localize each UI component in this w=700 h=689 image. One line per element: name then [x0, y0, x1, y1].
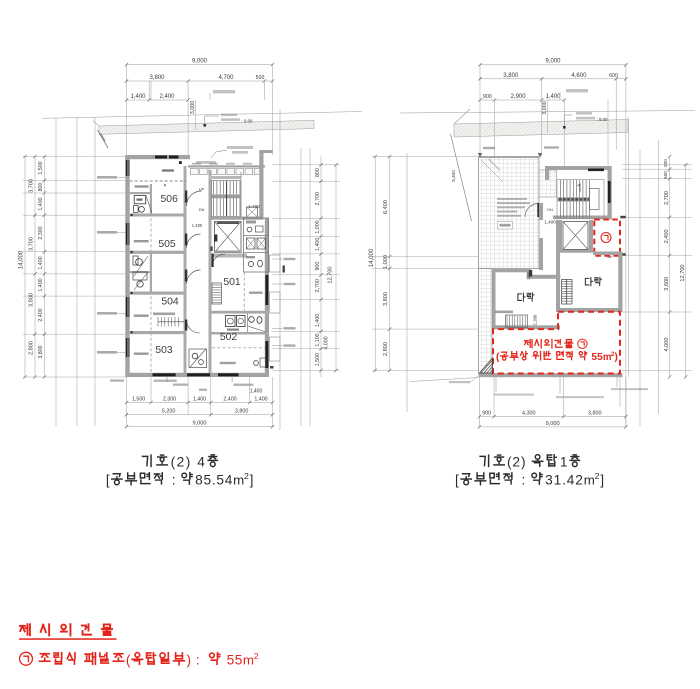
svg-text:3,800: 3,800: [383, 292, 389, 306]
svg-text:1,400: 1,400: [250, 389, 263, 395]
svg-text:31.42: 31.42: [545, 472, 584, 487]
svg-text:4,600: 4,600: [571, 73, 587, 79]
svg-text:85.54: 85.54: [195, 472, 233, 487]
svg-text:502: 502: [220, 332, 238, 343]
svg-text:[: [: [106, 472, 111, 487]
svg-text:800: 800: [663, 159, 668, 167]
svg-text:9,000: 9,000: [192, 59, 208, 65]
svg-text:1,400: 1,400: [192, 223, 203, 228]
svg-text:900: 900: [315, 262, 321, 271]
svg-text:3,700: 3,700: [29, 237, 35, 251]
svg-text:(: (: [496, 352, 500, 363]
svg-text::: :: [517, 472, 531, 487]
svg-text:(: (: [126, 652, 131, 667]
svg-text:1,400: 1,400: [193, 397, 206, 403]
svg-text:2,400: 2,400: [159, 94, 175, 100]
svg-text:2,800: 2,800: [383, 342, 389, 356]
svg-text:2,900: 2,900: [511, 94, 527, 100]
svg-text:900: 900: [482, 411, 491, 417]
svg-text:800: 800: [38, 183, 44, 192]
svg-text:]: ]: [600, 472, 605, 487]
svg-text:3,000: 3,000: [190, 101, 196, 115]
svg-text:3,800: 3,800: [29, 293, 35, 307]
svg-text:1,000: 1,000: [315, 220, 321, 233]
svg-text:: 9.00: : 9.00: [597, 117, 609, 122]
svg-text:) :: ) :: [186, 652, 208, 667]
svg-text:14,000: 14,000: [369, 248, 375, 267]
svg-text:3,800: 3,800: [235, 409, 249, 415]
svg-text:3,000: 3,000: [542, 101, 548, 115]
svg-text:1,100: 1,100: [315, 333, 321, 346]
svg-text::: :: [167, 472, 181, 487]
svg-text:3,800: 3,800: [38, 345, 44, 358]
svg-text:14,000: 14,000: [19, 250, 25, 269]
svg-text:DN: DN: [199, 207, 205, 212]
svg-text:2: 2: [254, 651, 259, 661]
svg-text:6,400: 6,400: [383, 200, 389, 214]
svg-text:4,000: 4,000: [664, 338, 670, 352]
svg-text:12,700: 12,700: [680, 264, 686, 281]
svg-text:1,200: 1,200: [533, 314, 538, 325]
svg-text:1,400: 1,400: [248, 204, 260, 209]
svg-text:m: m: [243, 652, 254, 667]
svg-text:9,000: 9,000: [545, 59, 561, 65]
svg-text:m: m: [233, 472, 244, 487]
svg-text:4,700: 4,700: [218, 75, 234, 81]
svg-text:2,700: 2,700: [664, 191, 670, 205]
svg-text:3,600: 3,600: [664, 277, 670, 291]
svg-text:1,400: 1,400: [545, 94, 561, 100]
svg-text:1,400: 1,400: [38, 278, 44, 291]
svg-text:5,400: 5,400: [451, 170, 456, 182]
svg-text:2: 2: [595, 471, 600, 481]
svg-text:1,400: 1,400: [315, 314, 321, 327]
svg-text:4,000: 4,000: [324, 336, 330, 349]
svg-text:(2): (2): [507, 454, 531, 469]
svg-text:UP: UP: [199, 187, 205, 192]
svg-text:1,400: 1,400: [38, 197, 44, 210]
svg-text:3,800: 3,800: [149, 75, 165, 81]
svg-text:2: 2: [244, 471, 249, 481]
svg-text:2,400: 2,400: [664, 229, 670, 243]
svg-text:m: m: [584, 472, 595, 487]
svg-text:55: 55: [588, 352, 603, 363]
svg-text:1,500: 1,500: [132, 397, 145, 403]
svg-text:900: 900: [483, 94, 492, 100]
svg-text:3,800: 3,800: [503, 73, 519, 79]
svg-text:2,400: 2,400: [38, 308, 44, 321]
svg-text:1,400: 1,400: [544, 220, 556, 225]
svg-text:: 9.00: : 9.00: [242, 118, 254, 123]
svg-text:9,000: 9,000: [193, 421, 207, 427]
svg-text:3,700: 3,700: [29, 179, 35, 193]
svg-text:2,400: 2,400: [223, 397, 236, 403]
svg-text:DN: DN: [547, 207, 553, 212]
svg-text:505: 505: [158, 239, 176, 250]
svg-text:800: 800: [315, 168, 321, 177]
svg-text:2,300: 2,300: [38, 226, 44, 239]
svg-text:2,800: 2,800: [29, 341, 35, 355]
svg-text:400: 400: [526, 271, 531, 278]
svg-text:12,700: 12,700: [328, 266, 334, 283]
svg-text:1,400: 1,400: [130, 94, 146, 100]
svg-text:9,000: 9,000: [546, 421, 560, 427]
svg-text:55: 55: [222, 652, 242, 667]
svg-text:1,000: 1,000: [383, 255, 389, 269]
svg-text:): ): [615, 352, 619, 363]
svg-text:1,400: 1,400: [254, 397, 267, 403]
svg-text:5,200: 5,200: [162, 409, 176, 415]
svg-text:1,400: 1,400: [38, 256, 44, 269]
svg-text:2,700: 2,700: [315, 192, 321, 205]
svg-text:2,700: 2,700: [315, 279, 321, 292]
svg-text:[: [: [455, 472, 460, 487]
svg-text:500: 500: [256, 75, 265, 81]
svg-text:4,300: 4,300: [522, 411, 536, 417]
svg-text:504: 504: [161, 297, 179, 308]
svg-text:1,400: 1,400: [315, 238, 321, 251]
svg-text:3,800: 3,800: [588, 411, 602, 417]
svg-text:503: 503: [155, 345, 173, 356]
svg-text:1,500: 1,500: [315, 353, 321, 366]
svg-text:1,500: 1,500: [38, 161, 44, 174]
svg-text:]: ]: [250, 472, 255, 487]
svg-text:501: 501: [223, 277, 241, 288]
svg-text:2,300: 2,300: [163, 397, 176, 403]
svg-text:1: 1: [560, 454, 569, 469]
svg-text:600: 600: [663, 171, 668, 179]
svg-text:(2) 4: (2) 4: [171, 454, 207, 469]
svg-text:506: 506: [161, 194, 179, 205]
